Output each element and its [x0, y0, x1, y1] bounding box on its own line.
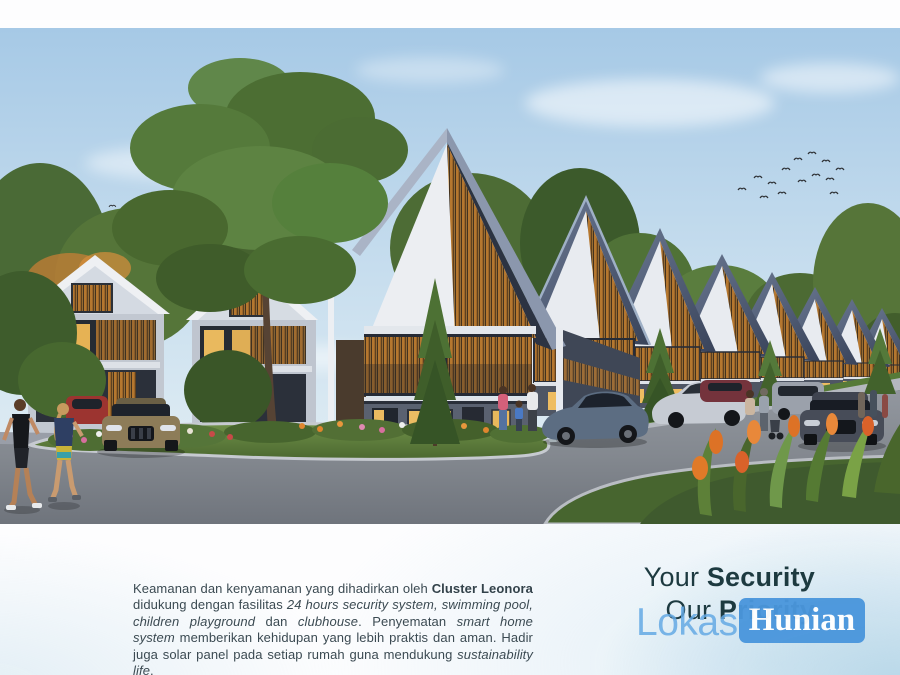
- caption-segment: . Penyematan: [358, 614, 457, 629]
- headline-line-1: Your Security: [644, 561, 815, 594]
- car-maroon: [700, 380, 752, 402]
- caption-segment: dan: [255, 614, 298, 629]
- description-paragraph: Keamanan dan kenyamanan yang dihadirkan …: [133, 581, 533, 675]
- caption-segment: didukung dengan fasilitas: [133, 597, 287, 612]
- caption-segment-bold: Cluster Leonora: [432, 581, 533, 596]
- watermark-lokasi: Lokasi: [636, 600, 746, 646]
- headline-line1-regular: Your: [644, 562, 707, 592]
- headline-line1-bold: Security: [707, 562, 815, 592]
- watermark: Lokasi Hunian: [636, 598, 865, 646]
- caption-segment: .: [150, 663, 154, 675]
- caption-segment-italic: clubhouse: [298, 614, 358, 629]
- brochure-page: Keamanan dan kenyamanan yang dihadirkan …: [0, 0, 900, 675]
- caption-segment: Keamanan dan kenyamanan yang dihadirkan …: [133, 581, 432, 596]
- watermark-hunian-badge: Hunian: [739, 598, 865, 643]
- hero-photo: [0, 28, 900, 524]
